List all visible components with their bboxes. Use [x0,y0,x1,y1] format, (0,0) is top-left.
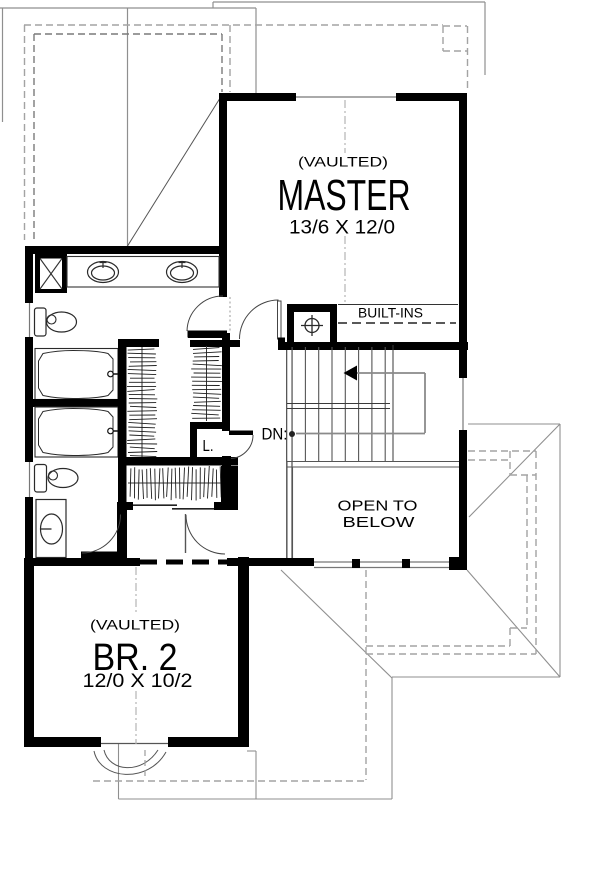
svg-text:(VAULTED): (VAULTED) [90,617,180,633]
svg-text:12/0 X 10/2: 12/0 X 10/2 [83,671,193,692]
svg-text:BUILT-INS: BUILT-INS [358,306,423,321]
svg-text:MASTER: MASTER [278,172,411,220]
svg-text:(VAULTED): (VAULTED) [298,154,388,170]
svg-text:L.: L. [203,438,214,455]
svg-text:BELOW: BELOW [343,514,416,531]
svg-text:13/6 X 12/0: 13/6 X 12/0 [289,218,395,239]
svg-text:DN:: DN: [262,426,288,444]
svg-text:OPEN TO: OPEN TO [338,498,418,515]
